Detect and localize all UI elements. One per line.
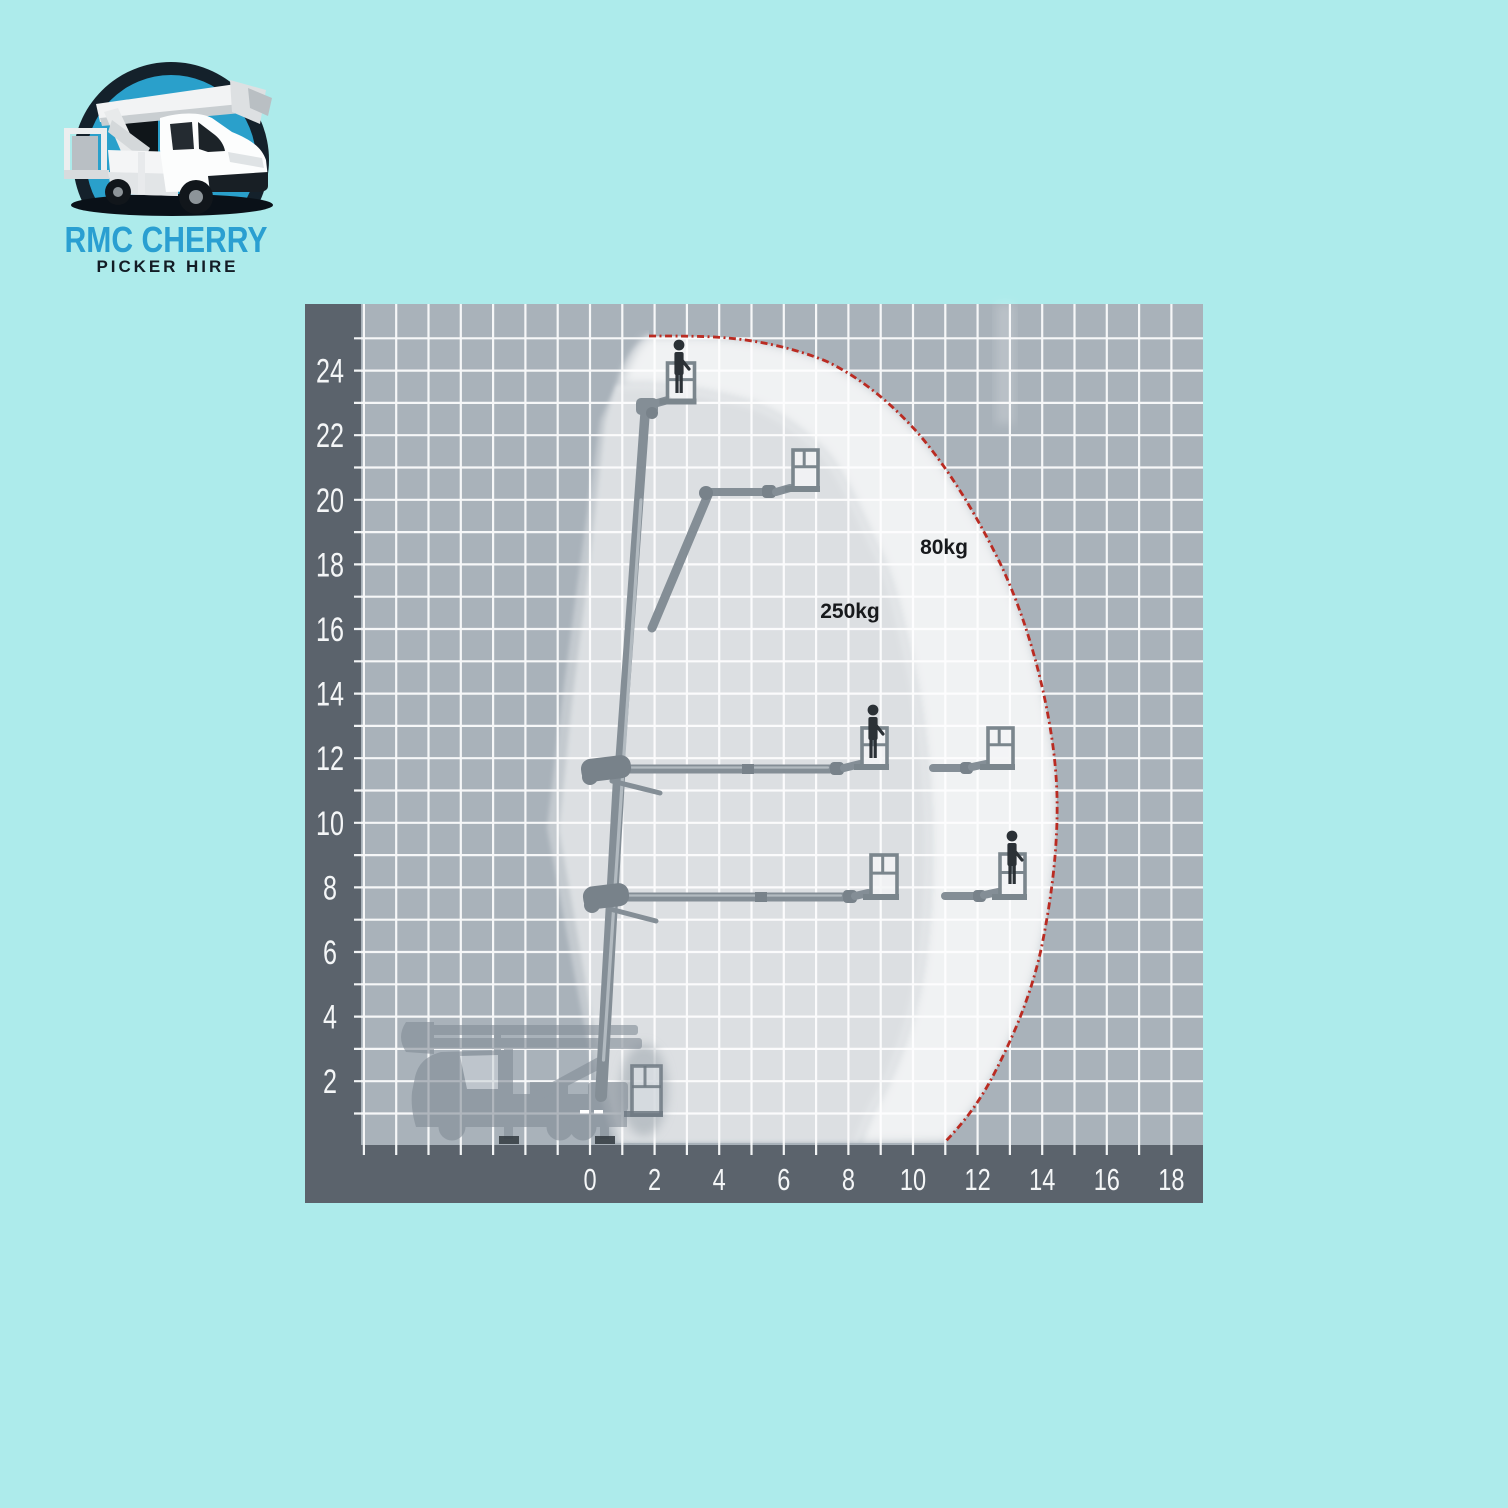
svg-text:8: 8 <box>842 1162 855 1197</box>
svg-text:4: 4 <box>323 999 337 1037</box>
svg-text:20: 20 <box>316 482 344 520</box>
svg-text:250kg: 250kg <box>820 600 880 623</box>
svg-text:10: 10 <box>316 805 344 843</box>
svg-text:6: 6 <box>777 1162 790 1197</box>
svg-text:14: 14 <box>1029 1162 1055 1197</box>
svg-text:4: 4 <box>713 1162 726 1197</box>
svg-text:RMC CHERRY: RMC CHERRY <box>65 219 268 260</box>
svg-text:10: 10 <box>900 1162 926 1197</box>
svg-text:6: 6 <box>323 934 337 972</box>
svg-text:24: 24 <box>316 353 344 391</box>
svg-text:0: 0 <box>583 1162 596 1197</box>
svg-text:18: 18 <box>316 547 344 585</box>
svg-text:PICKER HIRE: PICKER HIRE <box>97 257 238 276</box>
svg-text:2: 2 <box>648 1162 661 1197</box>
svg-text:16: 16 <box>316 611 344 649</box>
svg-text:12: 12 <box>316 741 344 779</box>
svg-text:14: 14 <box>316 676 344 714</box>
svg-text:80kg: 80kg <box>920 536 968 559</box>
svg-text:8: 8 <box>323 870 337 908</box>
svg-text:12: 12 <box>965 1162 991 1197</box>
svg-text:22: 22 <box>316 418 344 456</box>
svg-text:2: 2 <box>323 1064 337 1102</box>
svg-text:18: 18 <box>1158 1162 1184 1197</box>
svg-text:16: 16 <box>1094 1162 1120 1197</box>
